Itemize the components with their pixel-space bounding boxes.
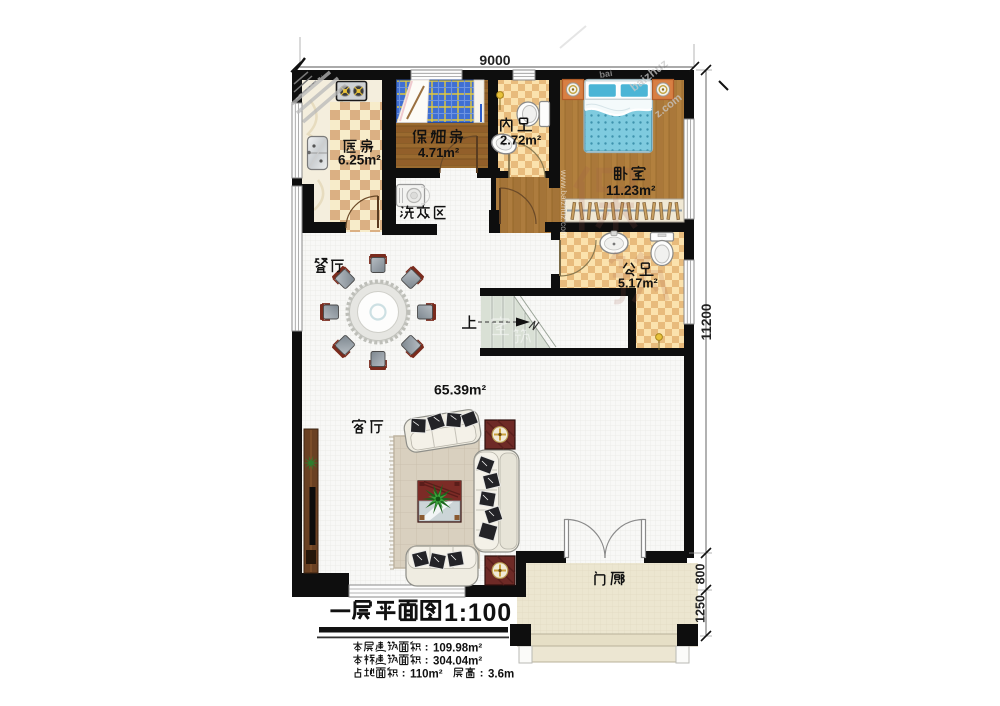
- svg-text:www.baizhuz.com: www.baizhuz.com: [559, 169, 569, 238]
- svg-text:110m²: 110m²: [410, 669, 443, 681]
- svg-text:109.98m²: 109.98m²: [433, 643, 482, 655]
- svg-text:2.72m²: 2.72m²: [500, 133, 542, 148]
- svg-text:800: 800: [694, 564, 708, 585]
- svg-text:1:100: 1:100: [444, 599, 512, 627]
- svg-text:6.25m²: 6.25m²: [338, 153, 381, 168]
- svg-text:65.39m²: 65.39m²: [434, 382, 486, 398]
- svg-text:3.6m: 3.6m: [488, 669, 514, 681]
- svg-text:5.17m²: 5.17m²: [618, 277, 658, 291]
- svg-text:11200: 11200: [699, 304, 714, 341]
- svg-text:304.04m²: 304.04m²: [433, 656, 482, 668]
- svg-text:1250: 1250: [694, 595, 708, 623]
- svg-text:9000: 9000: [479, 52, 510, 68]
- svg-text:4.71m²: 4.71m²: [418, 145, 460, 160]
- svg-text:11.23m²: 11.23m²: [606, 183, 656, 198]
